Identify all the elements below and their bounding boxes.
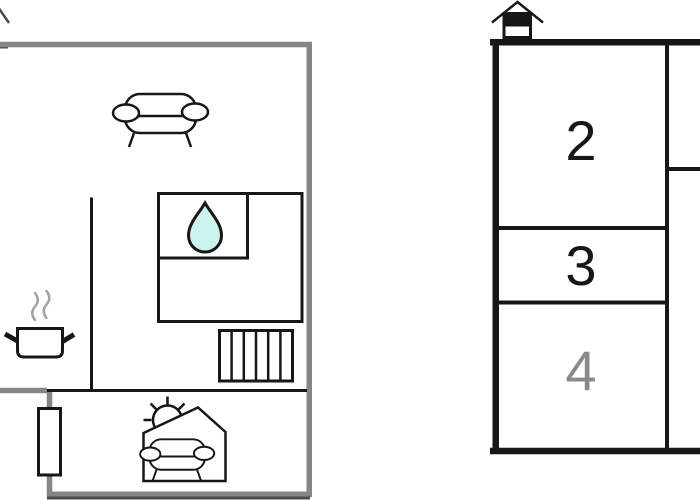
upper-interior-walls — [495, 45, 700, 448]
house-floor-band — [506, 15, 530, 27]
sofa-icon — [113, 94, 208, 147]
floor-plan-image: 2 3 4 — [0, 0, 700, 500]
pot-handle-right — [63, 335, 75, 342]
upper-floor-plan: 2 3 4 — [490, 2, 700, 454]
cooking-pot-icon — [5, 291, 74, 357]
room-4-label: 4 — [565, 339, 596, 402]
window-icon — [39, 409, 61, 476]
conservatory-icon — [140, 397, 225, 482]
ground-floor-plan — [0, 7, 310, 498]
pot-body — [18, 329, 63, 358]
stairs-icon — [220, 331, 293, 382]
water-drop-icon — [189, 203, 222, 252]
house-level-icon — [492, 2, 543, 38]
cutoff-house-roof-icon — [0, 7, 9, 23]
room-2-label: 2 — [565, 109, 596, 172]
floor-plans-canvas: 2 3 4 — [0, 0, 700, 500]
steam-icon — [32, 293, 38, 320]
pot-handle-left — [5, 334, 18, 341]
room-3-label: 3 — [565, 234, 596, 297]
steam-icon — [44, 291, 50, 318]
